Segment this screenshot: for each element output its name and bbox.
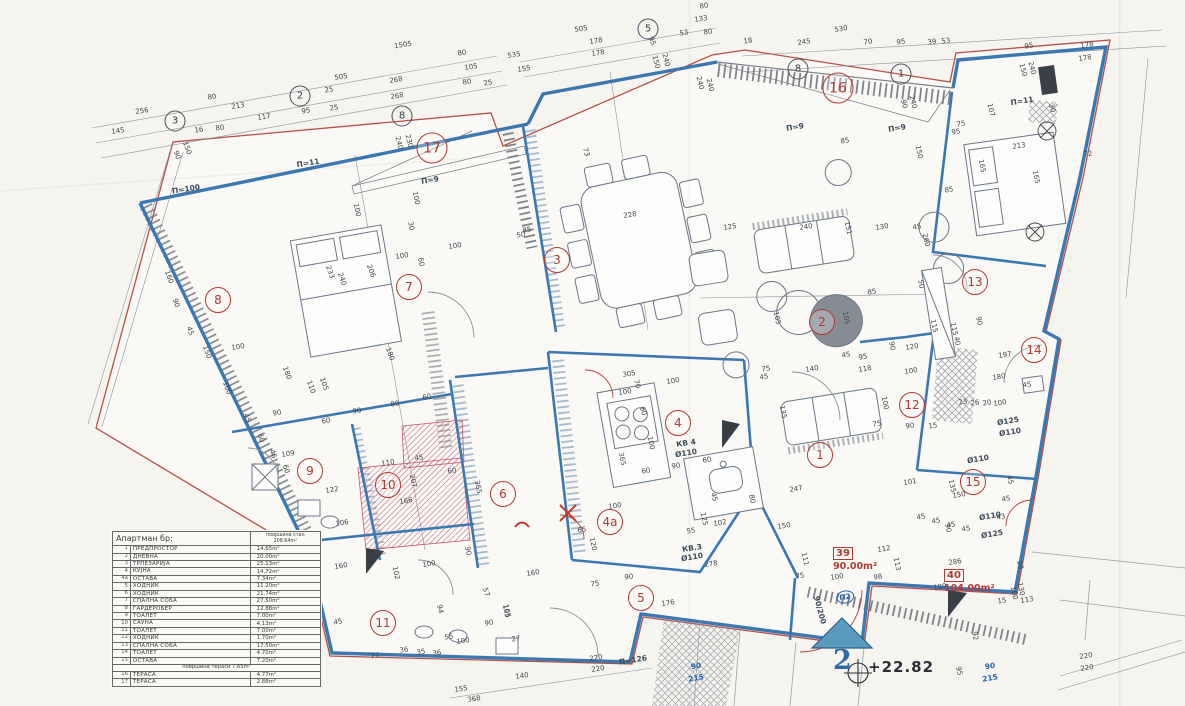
dimension-label: 92 [970, 631, 980, 641]
dimension-label: 90 [887, 341, 897, 351]
dimension-label: 90 [272, 408, 282, 417]
dimension-label: 176 [661, 598, 675, 608]
dimension-label: 180 [281, 365, 293, 380]
dimension-label: 178 [1080, 40, 1094, 50]
plan-label: Ø110 [966, 453, 989, 465]
dimension-label: 117 [257, 112, 271, 122]
room-number: 10 [375, 472, 401, 498]
dimension-label: 45 [333, 617, 343, 626]
dimension-label: 80 [390, 399, 400, 408]
dimension-label: 100 [830, 572, 844, 582]
dimension-label: 101 [903, 477, 917, 487]
dimension-label: 100 [880, 396, 891, 411]
dimension-label: 27 [511, 634, 521, 643]
axis-marker: 8 [392, 106, 413, 127]
dimension-label: 26 [970, 398, 980, 407]
apartment-area: 90.00m² [833, 561, 877, 572]
legend-row: 14ТОАЛЕТ4.70m² [113, 650, 321, 657]
dimension-label: 206 [365, 263, 377, 278]
legend-terrace-row: 16ТЕРАСА4.77m² [113, 671, 321, 678]
dimension-label: 90 [352, 406, 362, 415]
dimension-label: 95 [301, 106, 311, 115]
dimension-label: 220 [589, 653, 603, 663]
dimension-label: 45 [841, 350, 851, 359]
dimension-label: 40 [952, 336, 962, 346]
legend-row: 1ПРЕДПРОСТОР14.65m² [113, 546, 321, 553]
dimension-label: 45 [931, 516, 941, 525]
dimension-label: 25 [324, 85, 334, 94]
dimension-label: 111 [800, 552, 811, 567]
axis-marker: 3 [165, 111, 186, 132]
dimension-label: 95 [858, 352, 868, 361]
dimension-label: 90 [172, 149, 183, 160]
dimension-label: 278 [704, 559, 718, 569]
dimension-label: 240 [336, 271, 348, 286]
dimension-label: 45 [759, 372, 769, 381]
axis-marker: 8 [788, 59, 809, 80]
dimension-label: 125 [699, 512, 710, 527]
dimension-label: 106 [335, 518, 349, 528]
dimension-label: 45 [242, 412, 253, 423]
dimension-label: 60 [416, 257, 426, 267]
apartment-area: 104.00m² [944, 583, 995, 594]
dimension-label: 100 [448, 241, 462, 251]
dimension-label: 105 [841, 311, 852, 326]
dimension-label: 55 [444, 632, 454, 641]
dimension-label: 90 [974, 316, 984, 326]
dimension-label: 100 [422, 559, 436, 569]
plan-label: Ø125 [996, 415, 1019, 427]
legend-area-header: површина стан 208.64m² [250, 532, 320, 546]
dimension-label: 180 [992, 372, 1006, 382]
dimension-label: 45 [1005, 475, 1015, 485]
plan-label: П=100 [171, 182, 200, 195]
dimension-label: 180 [384, 346, 396, 361]
legend-table: Апартман бр: површина стан 208.64m² 1ПРЕ… [112, 531, 321, 687]
dimension-label: 178 [589, 36, 603, 46]
dimension-label: 100 [618, 387, 632, 397]
dimension-label: 98 [873, 572, 883, 581]
plan-label: П=9 [888, 122, 907, 134]
legend-row: 2ДНЕВНА20.00m² [113, 553, 321, 560]
dimension-label: 220 [1080, 663, 1094, 673]
dimension-label: 113 [1020, 595, 1034, 605]
apartment-number: 40 [944, 569, 964, 582]
dimension-label: 70 [632, 379, 642, 390]
dimension-label: 55 [686, 526, 696, 535]
dimension-label: 75 [761, 364, 771, 373]
dimension-label: 60 [256, 432, 267, 443]
dimension-label: 102 [391, 566, 402, 581]
dimension-label: 90 [171, 297, 182, 308]
dimension-label: 160 [334, 561, 348, 571]
dimension-label: 240 [704, 78, 715, 93]
floor-plan-scan: { "legend": { "title": "Апартман бр:", "… [0, 0, 1185, 706]
plan-label: 90 [984, 661, 996, 672]
dimension-label: 256 [135, 106, 149, 116]
dimension-label: 53 [941, 36, 951, 45]
legend-row: 4aОСТАВА7.34m² [113, 575, 321, 582]
dimension-label: 260 [921, 233, 932, 248]
room-number: 8 [205, 287, 231, 313]
dimension-label: 45 [916, 512, 926, 521]
legend-row: 9ТОАЛЕТ7.00m² [113, 612, 321, 619]
dimension-label: 110 [305, 379, 317, 394]
dimension-label: 100 [904, 366, 918, 376]
legend-row: 3ТРПЕЗАРИЈА25.13m² [113, 561, 321, 568]
room-number: 1 [807, 442, 833, 468]
dimension-label: 100 [221, 380, 233, 395]
dimension-label: 140 [805, 364, 819, 374]
dimension-label: 105 [502, 604, 513, 619]
dimension-label: 65 [577, 525, 587, 534]
dimension-label: 90 [624, 572, 634, 581]
dimension-label: 150 [181, 140, 193, 155]
plan-label: П=11 [1010, 95, 1034, 107]
dimension-label: 115 [949, 322, 960, 337]
dimension-label: 105 [464, 62, 478, 72]
room-number: 16 [823, 73, 854, 104]
dimension-label: 133 [694, 14, 708, 24]
dimension-label: 85 [840, 136, 850, 145]
dimension-label: 165 [1031, 170, 1042, 185]
dimension-label: 150 [777, 521, 791, 531]
dimension-label: 228 [623, 210, 637, 220]
dimension-label: 213 [1012, 141, 1026, 151]
legend-row: 12ХОДНИК1.70m² [113, 635, 321, 642]
dimension-label: 368 [467, 694, 481, 704]
dimension-label: 213 [231, 101, 245, 111]
plan-label: 215 [688, 672, 705, 683]
dimension-label: 130 [1016, 582, 1027, 597]
dimension-label: 18 [743, 36, 753, 45]
dimension-label: 107 [985, 103, 996, 118]
legend-row: 11ТОАЛЕТ7.00m² [113, 627, 321, 634]
dimension-label: 155 [517, 64, 531, 74]
room-number: 4a [597, 509, 623, 535]
dimension-label: 45 [1001, 494, 1011, 503]
dimension-label: 220 [591, 664, 605, 674]
dimension-label: 155 [454, 684, 468, 694]
dimension-label: 45 [912, 222, 922, 231]
dimension-label: 160 [163, 269, 175, 284]
dimension-label: 145 [111, 126, 125, 136]
dimension-label: 112 [877, 544, 891, 554]
plan-label: П=9 [786, 121, 805, 133]
dimension-label: 530 [834, 24, 848, 34]
dimension-label: 39 [927, 37, 937, 46]
plan-label: 90 [690, 661, 702, 672]
dimension-label: 30 [1047, 103, 1057, 114]
dimension-label: 100 [646, 436, 657, 451]
dimension-label: 80 [462, 77, 472, 86]
dimension-label: 45 [185, 325, 196, 336]
dimension-label: 207 [408, 474, 419, 489]
dimension-label: 85 [867, 287, 877, 296]
dimension-label: 90 [905, 421, 915, 430]
dimension-label: 60 [422, 392, 432, 401]
dimension-label: 365 [473, 480, 484, 495]
dimension-label: 36 [432, 648, 442, 657]
dimension-label: 140 [515, 671, 529, 681]
legend-row: 10САУНА4.13m² [113, 620, 321, 627]
dimension-label: 151 [843, 221, 854, 236]
dimension-label: 109 [281, 449, 295, 459]
legend-row: 5ХОДНИК11.20m² [113, 583, 321, 590]
legend-row: 4КУЈНА14.72m² [113, 568, 321, 575]
dimension-label: 60 [281, 463, 292, 474]
dimension-label: 240 [393, 136, 404, 151]
dimension-label: 100 [666, 376, 680, 386]
room-number: 13 [962, 269, 988, 295]
dimension-label: 305 [622, 369, 636, 379]
dimension-label: 240 [694, 76, 705, 91]
dimension-label: 60 [321, 416, 331, 425]
dimension-label: 240 [660, 53, 671, 68]
dimension-label: 135 [778, 405, 789, 420]
dimension-label: 505 [574, 24, 588, 34]
dimension-label: 105 [318, 376, 330, 391]
dimension-label: 16 [194, 125, 204, 134]
dimension-label: 60 [447, 466, 457, 475]
dimension-label: 95 [954, 666, 964, 676]
apartment-number: 39 [833, 547, 853, 560]
dimension-label: 100 [352, 203, 363, 218]
dimension-label: 23 [958, 397, 968, 406]
dimension-label: 150 [914, 145, 925, 160]
dimension-label: 90 [484, 618, 494, 627]
dimension-label: 77 [370, 651, 380, 660]
dimension-label: 60 [641, 466, 651, 475]
dimension-label: 35 [416, 647, 426, 656]
room-number: 3 [544, 247, 570, 273]
dimension-label: 45 [414, 453, 424, 462]
dimension-label: 230 [403, 134, 414, 149]
dimension-label: 110 [381, 458, 395, 468]
dimension-label: 90 [943, 523, 953, 533]
axis-marker: 2 [290, 86, 311, 107]
dimension-label: 150 [650, 55, 661, 70]
dimension-label: 245 [797, 37, 811, 47]
plan-label: Ø110 [680, 551, 703, 563]
plan-label: П=126 [618, 653, 647, 666]
dimension-label: 365 [617, 452, 628, 467]
dimension-label: 105 [772, 311, 783, 326]
dimension-label: 505 [334, 72, 348, 82]
dimension-label: 80 [747, 494, 757, 504]
dimension-label: 50 [516, 230, 526, 239]
room-number: 2 [809, 309, 835, 335]
dimension-label: 100 [231, 342, 245, 352]
dimension-label: 102 [713, 518, 727, 528]
dimension-label: 80 [207, 92, 217, 101]
plan-label: 215 [982, 672, 999, 683]
room-number: 11 [370, 610, 396, 636]
dimension-label: 1505 [394, 40, 413, 51]
dimension-label: 165 [977, 159, 988, 174]
dimension-label: 247 [789, 484, 803, 494]
dimension-label: 15 [928, 421, 938, 430]
room-number: 6 [490, 481, 516, 507]
dimension-label: 125 [723, 222, 737, 232]
dimension-label: 197 [998, 350, 1012, 360]
dimension-label: 100 [993, 398, 1007, 408]
dimension-label: 118 [858, 364, 872, 374]
dimension-label: 50 [916, 279, 926, 289]
dimension-label: 94 [435, 604, 445, 614]
dimension-label: 28 [1015, 560, 1025, 570]
dimension-label: 178 [591, 48, 605, 58]
axis-marker: 1 [891, 64, 912, 85]
dimension-label: 95 [1024, 41, 1034, 50]
dimension-label: 268 [390, 91, 404, 101]
dimension-label: 268 [389, 75, 403, 85]
room-number: 7 [396, 274, 422, 300]
dimension-label: 46 [268, 448, 279, 459]
dimension-label: 95 [896, 37, 906, 46]
dimension-label: 30 [406, 221, 416, 231]
dimension-label: 113 [892, 557, 903, 572]
dimension-label: 15 [997, 596, 1007, 605]
plan-label: П=9 [421, 174, 440, 186]
dimension-label: 240 [799, 222, 813, 232]
floor-number: 2 [833, 645, 852, 676]
dimension-label: 70 [863, 37, 873, 46]
dimension-label: 80 [699, 1, 709, 10]
dimension-label: 122 [325, 485, 339, 495]
room-number: 5 [628, 585, 654, 611]
dimension-label: 150 [201, 344, 213, 359]
dimension-label: 178 [1078, 53, 1092, 63]
dimension-label: 130 [875, 222, 889, 232]
dimension-label: 90 [671, 461, 681, 470]
elevation-value: +22.82 [868, 658, 934, 676]
dimension-label: 100 [456, 636, 470, 646]
room-number: 14 [1021, 337, 1047, 363]
dimension-label: 60 [702, 455, 712, 464]
legend-row: 7СПАЛНА СОБА27.50m² [113, 598, 321, 605]
legend-row: 6ХОДНИК21.74m² [113, 590, 321, 597]
plan-label: П=11 [296, 157, 320, 169]
legend-row: 13СПАЛНА СОБА17.50m² [113, 642, 321, 649]
dimension-label: 100 [395, 251, 409, 261]
apartment-area-label: 3990.00m² [833, 541, 877, 572]
dimension-label: 95 [951, 127, 961, 136]
dimension-label: 45 [1022, 380, 1032, 389]
dimension-label: 90 [463, 546, 473, 556]
dimension-label: 45 [961, 524, 971, 533]
dimension-label: 535 [507, 50, 521, 60]
dimension-label: 53 [679, 28, 689, 37]
dimension-label: 25 [483, 78, 493, 87]
dimension-label: 120 [905, 342, 919, 352]
room-number: 15 [960, 469, 986, 495]
dimension-label: 75 [590, 579, 600, 588]
dimension-label: 120 [588, 537, 599, 552]
dimension-label: 73 [581, 147, 591, 158]
dimension-label: 80 [703, 27, 713, 36]
apartment-area-label: 40104.00m² [944, 563, 995, 594]
dimension-label: 36 [399, 645, 409, 654]
room-number: 9 [297, 458, 323, 484]
plan-label: Ø125 [980, 528, 1003, 540]
dimension-label: 166 [399, 496, 413, 506]
dimension-label: 233 [324, 264, 336, 279]
plan-label: Ø110 [674, 447, 697, 459]
dimension-label: 115 [929, 319, 940, 334]
room-number: 17 [417, 133, 448, 164]
dimension-label: 85 [944, 185, 954, 194]
dimension-label: 75 [872, 419, 882, 428]
dimension-label: 80 [215, 123, 225, 132]
legend-title: Апартман бр: [113, 532, 251, 546]
dimension-label: 220 [1079, 651, 1093, 661]
dimension-label: 160 [526, 568, 540, 578]
dimension-label: 72 [1083, 149, 1093, 158]
legend-row: 8ГАРДЕРОБЕР12.88m² [113, 605, 321, 612]
dimension-label: 20 [982, 398, 992, 407]
dimension-label: 45 [709, 492, 719, 503]
plan-label: Ø110 [998, 426, 1021, 438]
dimension-label: 75 [795, 571, 805, 580]
dimension-label: 57 [481, 586, 492, 597]
axis-marker: 5 [638, 19, 659, 40]
dimension-label: 25 [329, 103, 339, 112]
room-number: 12 [899, 392, 925, 418]
plan-label: П2 [835, 589, 854, 605]
dimension-label: 60 [638, 406, 648, 417]
legend-terrace-header: површина тераси 7.65m² [113, 664, 321, 671]
legend-terrace-row: 17ТЕРАСА2.88m² [113, 679, 321, 686]
dimension-label: 80 [457, 48, 467, 57]
dimension-label: 100 [411, 191, 422, 206]
room-number: 4 [665, 410, 691, 436]
